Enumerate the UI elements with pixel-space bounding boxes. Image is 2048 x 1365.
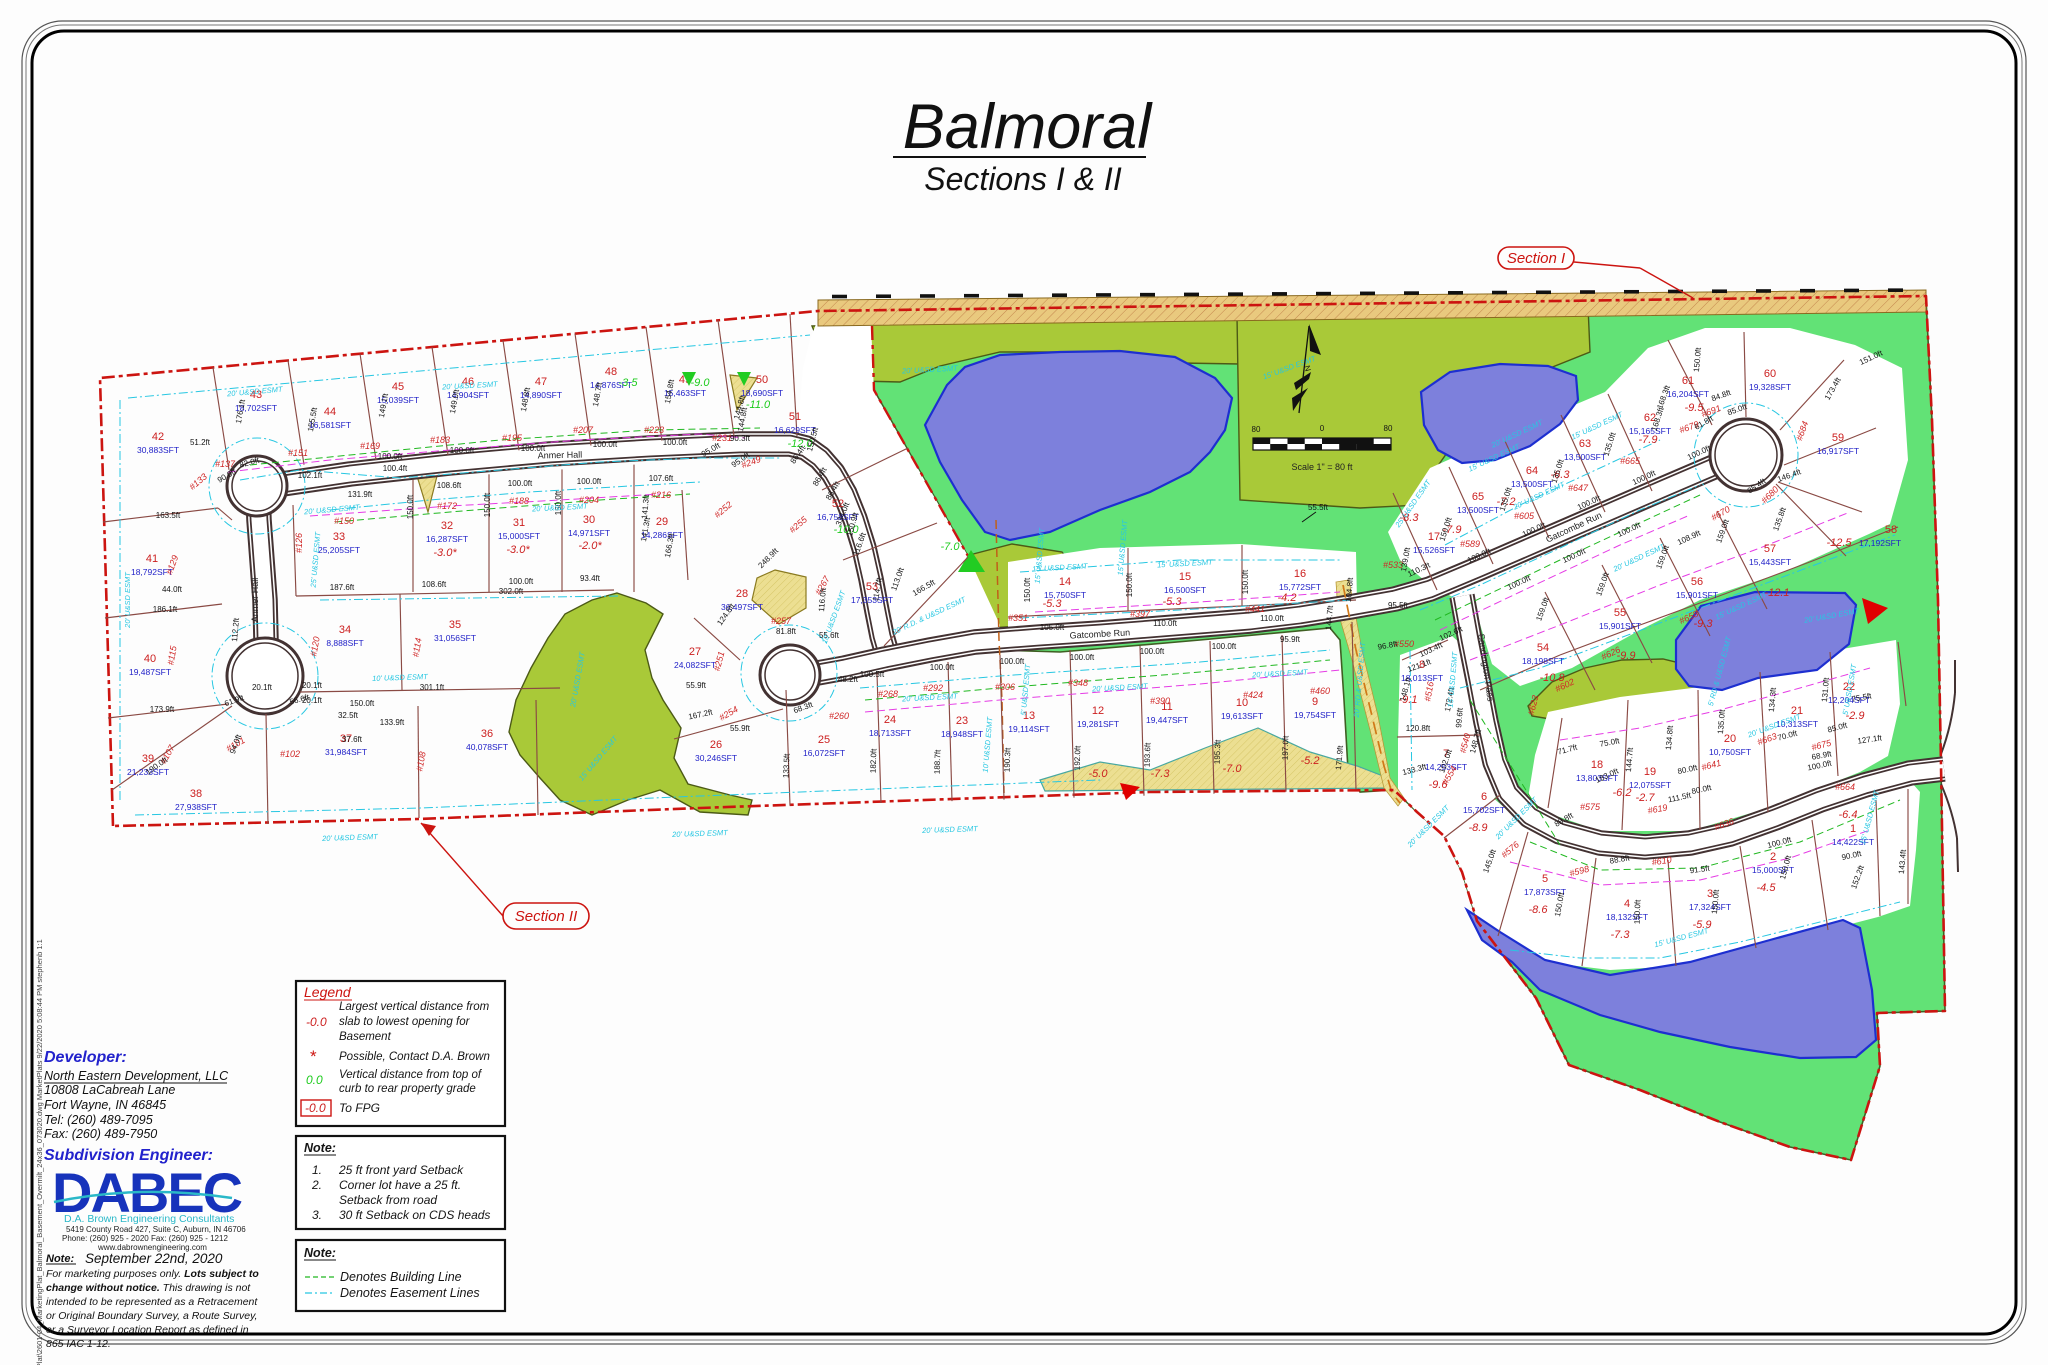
svg-text:#605: #605 [1514,511,1535,521]
svg-text:95.5ft: 95.5ft [1388,601,1409,610]
svg-text:150.0ft: 150.0ft [1633,899,1643,925]
svg-text:#390: #390 [1150,696,1170,706]
svg-text:-4.5: -4.5 [1757,882,1777,894]
svg-text:4: 4 [1624,898,1630,910]
svg-text:#664: #664 [1835,782,1855,792]
svg-text:20: 20 [1724,733,1736,745]
svg-text:19,613SFT: 19,613SFT [1221,711,1263,721]
svg-text:865 IAC 1-12.: 865 IAC 1-12. [46,1338,111,1350]
svg-text:150.0ft: 150.0ft [483,492,492,517]
svg-text:1: 1 [1850,823,1856,835]
svg-text:#102: #102 [280,749,300,759]
svg-text:31,984SFT: 31,984SFT [325,747,367,757]
svg-text:#268: #268 [878,689,898,699]
svg-text:-11.0: -11.0 [746,399,771,411]
svg-text:57: 57 [1764,543,1776,555]
svg-text:13,500SFT: 13,500SFT [1564,452,1606,462]
svg-text:15,443SFT: 15,443SFT [1749,557,1791,567]
svg-text:187.6ft: 187.6ft [330,583,355,592]
svg-text:100.0ft: 100.0ft [1212,642,1237,651]
svg-text:100.0ft: 100.0ft [378,452,403,461]
svg-text:95.9ft: 95.9ft [1280,635,1301,644]
svg-text:44.0ft: 44.0ft [162,585,183,594]
svg-text:35: 35 [449,619,461,631]
svg-text:12: 12 [1092,705,1104,717]
svg-text:100.0ft: 100.0ft [509,577,534,586]
svg-text:19,487SFT: 19,487SFT [129,667,171,677]
svg-text:20.1ft: 20.1ft [302,696,323,705]
svg-text:42: 42 [152,431,164,443]
svg-text:19,328SFT: 19,328SFT [1749,382,1791,392]
svg-text:19,447SFT: 19,447SFT [1146,715,1188,725]
svg-text:-6.4: -6.4 [1839,809,1858,821]
svg-text:#460: #460 [1310,686,1330,696]
svg-text:Developer:: Developer: [44,1049,127,1066]
svg-text:14,971SFT: 14,971SFT [568,528,610,538]
svg-text:100.4ft: 100.4ft [383,464,408,473]
svg-text:32: 32 [441,520,453,532]
svg-text:100.0ft: 100.0ft [593,440,618,449]
svg-text:#169: #169 [360,441,380,451]
svg-text:107.6ft: 107.6ft [649,474,674,483]
svg-text:0: 0 [1320,424,1325,433]
svg-text:#216: #216 [651,490,671,500]
svg-text:302.0ft: 302.0ft [499,587,524,596]
svg-text:#188: #188 [509,496,529,506]
svg-text:Denotes Building Line: Denotes Building Line [340,1270,462,1284]
svg-text:54: 54 [1537,642,1549,654]
svg-text:-6.2: -6.2 [1613,787,1632,799]
svg-text:or a Surveyor Location Report: or a Surveyor Location Report as defined… [46,1324,249,1336]
svg-text:41: 41 [146,553,158,565]
svg-text:90.3ft: 90.3ft [730,434,751,443]
svg-text:38: 38 [190,788,202,800]
svg-text:24: 24 [884,714,896,726]
svg-text:#647: #647 [1568,483,1589,493]
svg-text:-12.1: -12.1 [1764,587,1789,599]
svg-text:16,500SFT: 16,500SFT [1164,585,1206,595]
svg-text:61: 61 [1682,375,1694,387]
svg-text:195.3ft: 195.3ft [1213,739,1223,765]
svg-text:150.0ft: 150.0ft [350,699,375,708]
svg-text:19,281SFT: 19,281SFT [1077,719,1119,729]
svg-text:193.6ft: 193.6ft [1143,742,1153,768]
svg-text:#126: #126 [294,533,304,553]
svg-text:45: 45 [392,381,404,393]
svg-text:81.8ft: 81.8ft [776,627,797,636]
svg-text:100.0ft: 100.0ft [450,446,475,455]
svg-text:58: 58 [1885,524,1897,536]
svg-text:31: 31 [513,517,525,529]
svg-text:8,888SFT: 8,888SFT [326,638,363,648]
svg-text:Anmer Hall: Anmer Hall [250,578,260,623]
svg-text:99.6ft: 99.6ft [1454,707,1465,728]
svg-text:20.1ft: 20.1ft [302,681,323,690]
svg-text:30: 30 [583,514,595,526]
svg-text:Legend: Legend [304,984,352,1000]
svg-text:-7.3: -7.3 [1151,768,1171,780]
svg-text:192.0ft: 192.0ft [1073,745,1083,771]
svg-text:For marketing purposes only.: For marketing purposes only. Lots subjec… [46,1268,259,1280]
svg-text:#441: #441 [1245,604,1265,614]
svg-text:65: 65 [1472,491,1484,503]
svg-text:18: 18 [1591,759,1603,771]
svg-text:59: 59 [1832,432,1844,444]
svg-text:51: 51 [789,411,801,423]
svg-text:100.0ft: 100.0ft [1070,653,1095,662]
svg-text:24,082SFT: 24,082SFT [674,660,716,670]
svg-text:D.A. Brown Engineering Consult: D.A. Brown Engineering Consultants [64,1213,234,1225]
svg-text:301.1ft: 301.1ft [420,683,445,692]
svg-text:93.4ft: 93.4ft [580,574,601,583]
svg-text:#348: #348 [1068,678,1088,688]
svg-text:100.0ft: 100.0ft [1140,647,1165,656]
svg-text:17,192SFT: 17,192SFT [1859,538,1901,548]
svg-text:#195: #195 [502,433,523,443]
svg-text:-0.0: -0.0 [305,1101,326,1115]
svg-text:55.5ft: 55.5ft [1308,503,1329,512]
svg-text:150.0ft: 150.0ft [1241,569,1250,594]
svg-text:19,114SFT: 19,114SFT [1008,724,1049,734]
svg-text:Corner lot have a 25 ft.: Corner lot have a 25 ft. [339,1178,461,1192]
svg-text:25: 25 [818,734,830,746]
svg-text:#223: #223 [644,425,664,435]
svg-text:30,883SFT: 30,883SFT [137,445,179,455]
svg-text:63: 63 [1579,438,1591,450]
svg-text:25,205SFT: 25,205SFT [318,545,360,555]
svg-text:#351: #351 [1008,613,1028,623]
svg-text:30 ft Setback on CDS heads: 30 ft Setback on CDS heads [339,1208,490,1222]
svg-text:Phone: (260) 925 - 2020: Phone: (260) 925 - 2020 Fax: (260) 925 -… [62,1234,228,1243]
svg-text:-8.9: -8.9 [1469,822,1488,834]
svg-text:16,072SFT: 16,072SFT [803,748,845,758]
svg-text:-2.0*: -2.0* [578,540,602,552]
svg-text:Largest vertical distance from: Largest vertical distance from [339,1001,490,1013]
svg-text:64: 64 [1526,465,1538,477]
svg-text:197.0ft: 197.0ft [1281,735,1291,761]
svg-text:10808 LaCabreah Lane: 10808 LaCabreah Lane [44,1083,175,1097]
svg-text:40: 40 [144,653,156,665]
svg-text:80: 80 [1252,425,1261,434]
svg-text:150.0ft: 150.0ft [406,494,415,519]
svg-text:0.0: 0.0 [306,1073,323,1087]
svg-text:-7.0: -7.0 [1223,763,1243,775]
svg-text:100.0ft: 100.0ft [521,444,546,453]
svg-text:-7.0: -7.0 [941,541,961,553]
svg-text:Section II: Section II [515,908,578,925]
svg-text:150.0ft: 150.0ft [1125,572,1134,597]
svg-text:18,690SFT: 18,690SFT [741,388,783,398]
svg-text:50: 50 [756,374,768,386]
svg-text:47: 47 [535,376,547,388]
svg-text:13,500SFT: 13,500SFT [1457,505,1499,515]
svg-text:-7.9: -7.9 [1639,434,1658,446]
svg-text:Vertical distance from top of: Vertical distance from top of [339,1069,483,1081]
svg-text:18,198SFT: 18,198SFT [1522,656,1564,666]
svg-text:#397: #397 [1130,609,1151,619]
svg-text:2.: 2. [311,1178,322,1192]
svg-text:27: 27 [689,646,701,658]
svg-text:188.7ft: 188.7ft [933,749,943,775]
svg-text:#150: #150 [334,516,354,526]
svg-text:-3.5: -3.5 [619,377,639,389]
svg-text:Possible, Contact D.A. Brown: Possible, Contact D.A. Brown [339,1051,490,1063]
svg-text:Basement: Basement [339,1031,392,1043]
svg-text:23: 23 [956,715,968,727]
svg-text:55: 55 [1614,607,1626,619]
svg-text:55.9ft: 55.9ft [686,681,707,690]
svg-text:19: 19 [1644,766,1656,778]
svg-text:163.5ft: 163.5ft [156,511,181,520]
svg-text:-8.6: -8.6 [1529,904,1549,916]
svg-text:5: 5 [1542,873,1548,885]
svg-text:Note:: Note: [304,1141,336,1155]
svg-text:30,246SFT: 30,246SFT [695,753,737,763]
svg-text:-7.3: -7.3 [1611,929,1631,941]
svg-text:-3.0*: -3.0* [433,547,457,559]
svg-text:-5.3: -5.3 [1043,598,1063,610]
svg-text:*: * [310,1047,317,1066]
svg-text:-2.7: -2.7 [1636,792,1656,804]
svg-text:5419 County Road 427, Suite C,: 5419 County Road 427, Suite C, Auburn, I… [66,1225,246,1234]
svg-text:36: 36 [481,728,493,740]
svg-text:173.9ft: 173.9ft [150,705,175,714]
svg-text:34: 34 [339,624,351,636]
svg-text:44: 44 [324,406,336,418]
svg-text:37.6ft: 37.6ft [342,735,363,744]
svg-text:80: 80 [1384,424,1393,433]
svg-text:Tel: (260) 489-7095: Tel: (260) 489-7095 [44,1113,153,1127]
svg-text:55.9ft: 55.9ft [730,724,751,733]
svg-text:182.0ft: 182.0ft [869,748,879,774]
svg-text:#575: #575 [1580,802,1601,812]
svg-text:40,078SFT: 40,078SFT [466,742,508,752]
svg-text:60: 60 [1764,368,1776,380]
svg-text:150.0ft: 150.0ft [1023,577,1032,602]
svg-text:10,750SFT: 10,750SFT [1709,747,1751,757]
svg-text:28: 28 [736,588,748,600]
svg-text:#257: #257 [771,616,792,626]
svg-text:108.6ft: 108.6ft [422,580,447,589]
svg-text:51.2ft: 51.2ft [190,438,211,447]
svg-text:18,948SFT: 18,948SFT [941,729,983,739]
svg-text:-9.3: -9.3 [1694,618,1714,630]
svg-text:108.6ft: 108.6ft [437,481,462,490]
svg-text:2: 2 [1770,851,1776,863]
svg-text:20' U&SD ESMT: 20' U&SD ESMT [123,571,132,629]
svg-text:12,075SFT: 12,075SFT [1629,780,1671,790]
svg-text:19,754SFT: 19,754SFT [1294,710,1336,720]
svg-text:25 ft front yard Setback: 25 ft front yard Setback [338,1163,464,1177]
svg-text:102.1ft: 102.1ft [298,471,323,480]
svg-text:31,056SFT: 31,056SFT [434,633,476,643]
svg-text:-12.5: -12.5 [1826,537,1852,549]
svg-text:To FPG: To FPG [339,1101,380,1115]
svg-text:North Eastern Development, LLC: North Eastern Development, LLC [44,1069,229,1083]
svg-text:15,526SFT: 15,526SFT [1413,545,1455,555]
svg-text:Note:: Note: [304,1246,336,1260]
svg-text:Setback from road: Setback from road [339,1193,437,1207]
svg-text:131.9ft: 131.9ft [348,490,373,499]
svg-text:33: 33 [333,531,345,543]
svg-text:#260: #260 [829,711,849,721]
svg-text:9: 9 [1312,696,1318,708]
svg-text:Fort Wayne, IN 46845: Fort Wayne, IN 46845 [44,1098,166,1112]
svg-text:curb to rear property grade: curb to rear property grade [339,1083,476,1095]
svg-text:15,000SFT: 15,000SFT [498,531,540,541]
svg-text:186.1ft: 186.1ft [153,605,178,614]
svg-text:16,287SFT: 16,287SFT [426,534,468,544]
svg-text:Scale 1" = 80 ft: Scale 1" = 80 ft [1292,462,1353,472]
svg-text:14: 14 [1059,576,1071,588]
svg-text:or Original Boundary Survey, a: or Original Boundary Survey, a Route Sur… [46,1310,257,1322]
svg-text:Sections I & II: Sections I & II [924,161,1122,197]
svg-text:120.8ft: 120.8ft [1406,724,1431,733]
svg-text:32.5ft: 32.5ft [338,711,359,720]
svg-text:#589: #589 [1460,539,1480,549]
svg-text:#665: #665 [1620,456,1641,466]
svg-text:100.0ft: 100.0ft [663,438,688,447]
svg-text:100.5ft: 100.5ft [860,670,885,679]
svg-text:Section I: Section I [1507,250,1565,267]
svg-text:K:\2020\2601-04\Marketing Plat: K:\2020\2601-04\Marketing Plat\2601-04_M… [35,939,44,1365]
svg-text:15: 15 [1179,571,1191,583]
svg-text:110.0ft: 110.0ft [1260,614,1285,623]
svg-text:15,901SFT: 15,901SFT [1599,621,1641,631]
svg-text:27,938SFT: 27,938SFT [175,802,217,812]
svg-text:Fax: (260) 489-7950: Fax: (260) 489-7950 [44,1127,157,1141]
svg-text:48.2ft: 48.2ft [838,675,859,684]
svg-text:16,204SFT: 16,204SFT [1667,389,1709,399]
svg-text:6: 6 [1481,791,1487,803]
svg-text:-3.0*: -3.0* [506,544,530,556]
svg-text:#183: #183 [430,435,450,445]
svg-text:-5.2: -5.2 [1301,755,1320,767]
svg-text:15,901SFT: 15,901SFT [1676,590,1718,600]
svg-text:56: 56 [1691,576,1703,588]
svg-text:3.: 3. [312,1208,322,1222]
svg-text:20.1ft: 20.1ft [252,683,273,692]
svg-text:-4.2: -4.2 [1278,592,1297,604]
svg-text:16,917SFT: 16,917SFT [1817,446,1859,456]
svg-text:#424: #424 [1243,690,1263,700]
svg-text:-5.0: -5.0 [1089,768,1109,780]
svg-text:100.0ft: 100.0ft [1000,657,1025,666]
svg-text:#207: #207 [573,425,594,435]
svg-text:#306: #306 [995,682,1015,692]
svg-text:110.0ft: 110.0ft [1153,619,1178,628]
svg-text:100.0ft: 100.0ft [508,479,533,488]
svg-text:-0.0: -0.0 [306,1015,327,1029]
svg-text:105.0ft: 105.0ft [1040,623,1065,632]
svg-text:26: 26 [710,739,722,751]
svg-text:Balmoral: Balmoral [903,92,1154,162]
svg-text:intended to be represented as: intended to be represented as a Retracem… [46,1296,258,1308]
svg-text:change without notice. This d: change without notice. This drawing is n… [46,1282,251,1294]
svg-text:29: 29 [656,516,668,528]
svg-text:15,772SFT: 15,772SFT [1279,582,1321,592]
svg-text:100.0ft: 100.0ft [577,477,602,486]
svg-text:18,713SFT: 18,713SFT [869,728,911,738]
svg-text:16: 16 [1294,568,1306,580]
svg-text:100.0ft: 100.0ft [930,663,955,672]
svg-text:48: 48 [605,366,617,378]
svg-text:September 22nd, 2020: September 22nd, 2020 [85,1251,223,1266]
svg-text:-5.3: -5.3 [1163,596,1183,608]
svg-text:-9.0: -9.0 [691,377,711,389]
svg-text:#151: #151 [288,448,308,458]
svg-text:slab to lowest opening for: slab to lowest opening for [339,1016,471,1028]
svg-text:133.5ft: 133.5ft [781,753,791,779]
svg-text:#172: #172 [437,501,457,511]
svg-text:Note:: Note: [46,1253,74,1265]
svg-text:1.: 1. [312,1163,322,1177]
svg-text:Denotes Easement Lines: Denotes Easement Lines [340,1286,480,1300]
svg-text:133.9ft: 133.9ft [380,718,405,727]
svg-text:190.3ft: 190.3ft [1003,747,1013,773]
svg-text:15,702SFT: 15,702SFT [1463,805,1505,815]
